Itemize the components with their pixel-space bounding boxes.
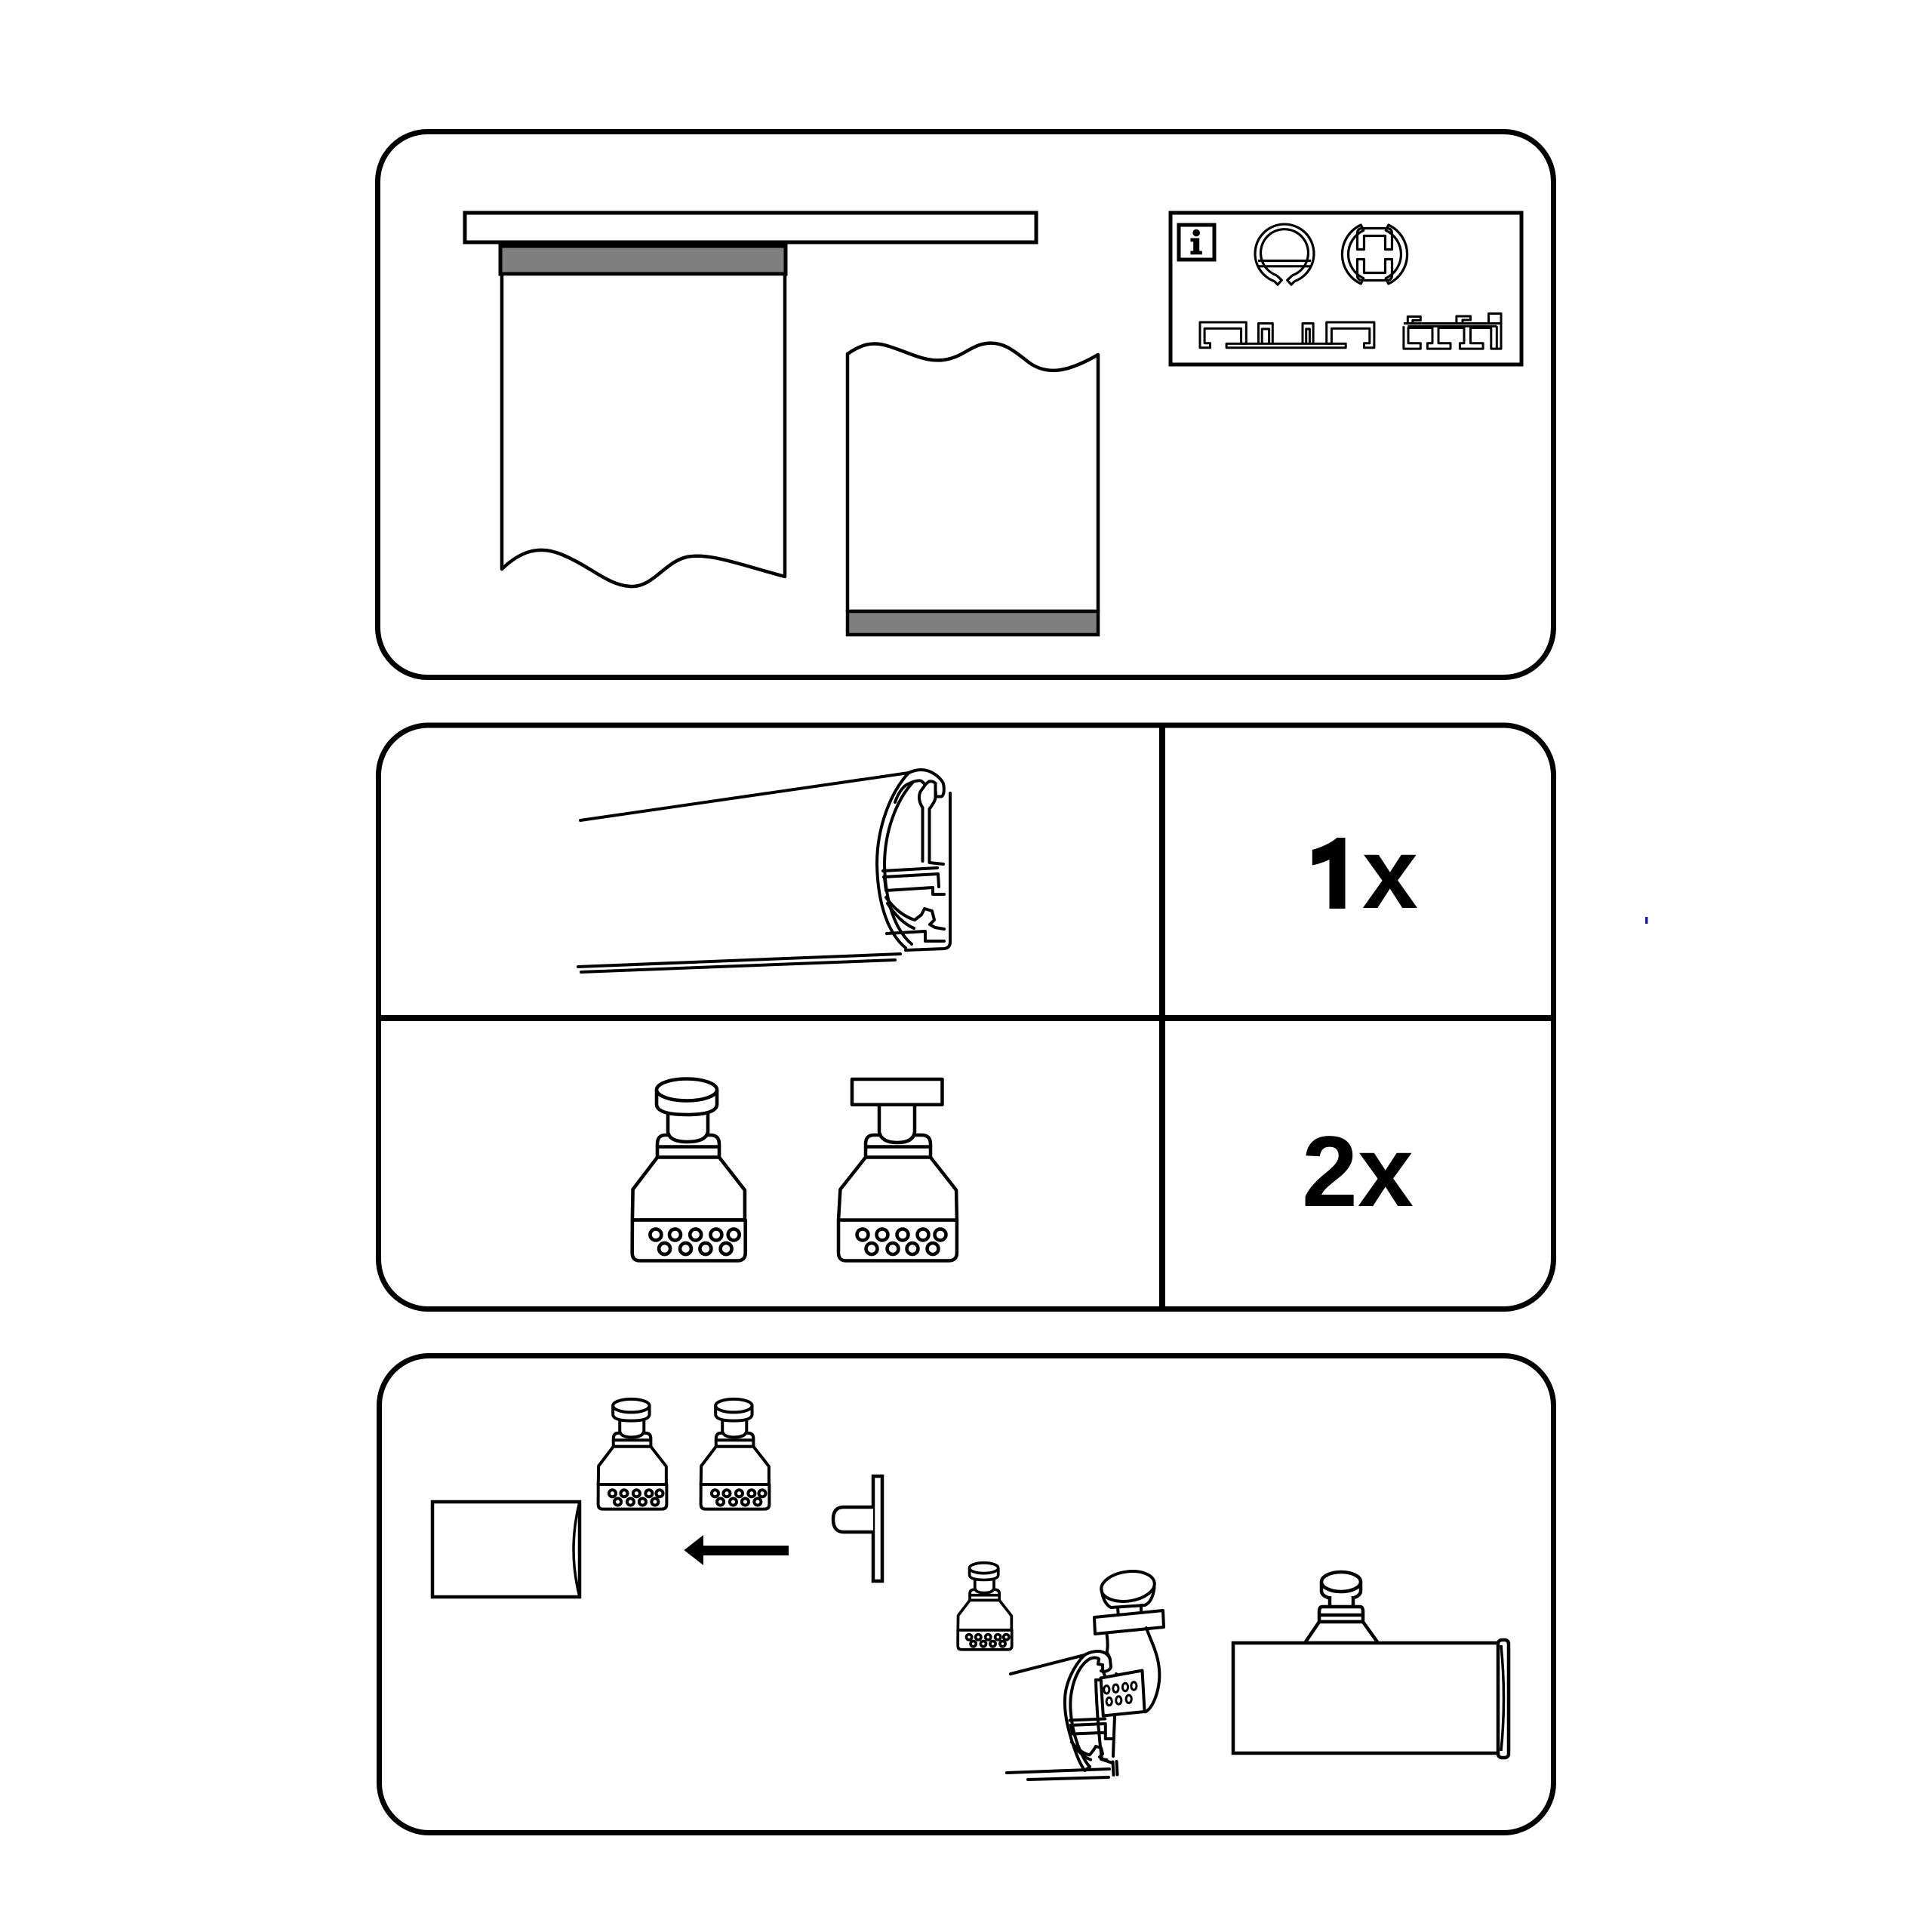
svg-text:x: x	[1362, 818, 1418, 930]
svg-text:2x: 2x	[1302, 1116, 1414, 1228]
